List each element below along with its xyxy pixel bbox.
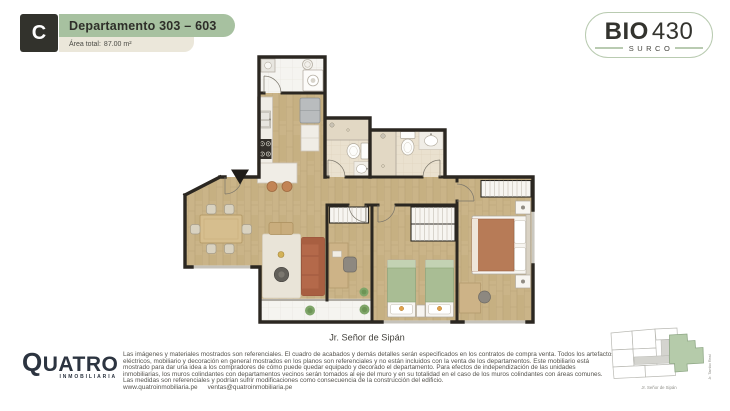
unit-outline [612,349,634,367]
dining-chair [207,244,217,254]
toilet-1 [347,143,369,159]
laptop [333,251,342,257]
contact-line: www.quatroinmobiliaria.peventas@quatroin… [123,385,615,392]
minimap-street-bottom: Jr. Señor de Sipán [641,385,677,390]
bar-stool [282,182,292,192]
street-label: Jr. Señor de Sipán [329,333,405,343]
area-total: Área total: 87.00 m² [59,37,194,52]
bio430-logo: BIO430 SURCO [585,12,713,58]
unit-header: C Departamento 303 – 603 Área total: 87.… [20,14,235,52]
logo-district-row: SURCO [586,44,712,53]
unit-title-block: Departamento 303 – 603 Área total: 87.00… [59,14,235,52]
unit-outline [645,364,676,377]
double-bed [472,215,531,276]
shower-1 [327,120,369,140]
bio430-wordmark: BIO430 [605,20,694,43]
minimap-street-right: Jr. Tambo Real [708,354,712,379]
toilet-2 [401,132,416,156]
logo-line-right [675,47,703,48]
website: www.quatroinmobiliaria.pe [123,384,198,391]
highlighted-unit [670,334,704,372]
desk-chair [479,291,491,303]
shower-head-1 [330,123,334,127]
disclaimer-text: Las imágenes y materiales mostrados son … [123,352,615,391]
quatro-logo: QUATRO INMOBILIARIA [22,351,117,380]
logo-line-left [595,47,623,48]
window [192,265,252,268]
unit-outline [613,366,646,379]
washing-machine [303,70,323,91]
dining-chair [225,244,235,254]
vase [278,252,284,258]
kitchen-sink [260,111,272,128]
wardrobe-study [330,207,369,223]
sink-1 [354,162,369,177]
lamp [521,206,525,210]
hall-floor [185,177,457,205]
lamp [399,306,403,310]
master-desk [460,283,481,313]
balcony-floor [260,300,372,322]
closet-master [481,181,531,198]
lamp [521,280,525,284]
email: ventas@quatroinmobiliaria.pe [208,384,293,391]
rug [263,234,301,298]
desk-chair [344,257,357,272]
unit-title-text: Departamento 303 – 603 [69,19,217,33]
location-minimap: Jr. Señor de Sipán Jr. Tambo Real [599,320,727,410]
sofa [302,238,325,296]
unit-letter-badge: C [20,14,58,52]
window [463,320,527,323]
dining-chair [191,225,201,235]
floor-plan: Jr. Señor de Sipán [160,55,570,345]
sink-2 [419,132,443,150]
unit-title: Departamento 303 – 603 [59,14,235,37]
wardrobe-bedroom2 [411,207,455,241]
area-value: 87.00 m² [104,41,132,48]
quatro-name: QUATRO [22,351,117,376]
logo-number: 430 [652,18,694,45]
dining-chair [242,225,252,235]
kitchen-peninsula [258,163,298,183]
laundry-basin [265,62,272,69]
nightstand [417,305,426,317]
window [382,320,452,323]
water-heater [303,60,313,70]
bar-stool [267,182,277,192]
logo-name: BIO [605,18,649,45]
window [531,210,534,265]
unit-outline [632,329,656,349]
lamp [437,306,441,310]
dining-chair [225,205,235,215]
shower-head-2 [381,134,386,139]
logo-district: SURCO [629,44,674,53]
unit-outline [611,331,633,350]
area-label: Área total: [69,41,101,48]
dining-chair [207,205,217,215]
floor-plan-page: { "header": { "unit_letter": "C", "title… [0,0,730,411]
